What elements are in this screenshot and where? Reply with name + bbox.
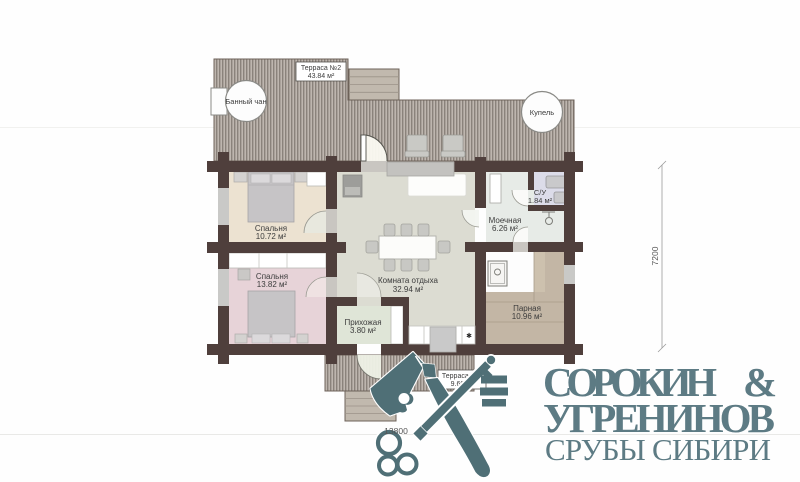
svg-text:Купель: Купель <box>530 108 554 117</box>
svg-text:10.72 м²: 10.72 м² <box>256 232 287 241</box>
svg-text:7200: 7200 <box>650 246 660 265</box>
svg-text:Банный чан: Банный чан <box>225 97 266 106</box>
svg-text:43.84 м²: 43.84 м² <box>308 73 335 80</box>
svg-text:Комната отдыха: Комната отдыха <box>378 276 439 285</box>
svg-text:10.96 м²: 10.96 м² <box>512 312 543 321</box>
svg-text:✱: ✱ <box>466 332 472 340</box>
svg-text:Терраса №2: Терраса №2 <box>301 65 341 72</box>
svg-text:32.94 м²: 32.94 м² <box>393 285 424 294</box>
svg-text:6.26 м²: 6.26 м² <box>492 224 518 233</box>
svg-text:1.84 м²: 1.84 м² <box>528 196 553 205</box>
svg-text:13.82 м²: 13.82 м² <box>257 280 288 289</box>
svg-text:СРУБЫ СИБИРИ: СРУБЫ СИБИРИ <box>545 432 771 467</box>
svg-text:3.80 м²: 3.80 м² <box>350 326 376 335</box>
svg-text:13800: 13800 <box>384 426 408 436</box>
